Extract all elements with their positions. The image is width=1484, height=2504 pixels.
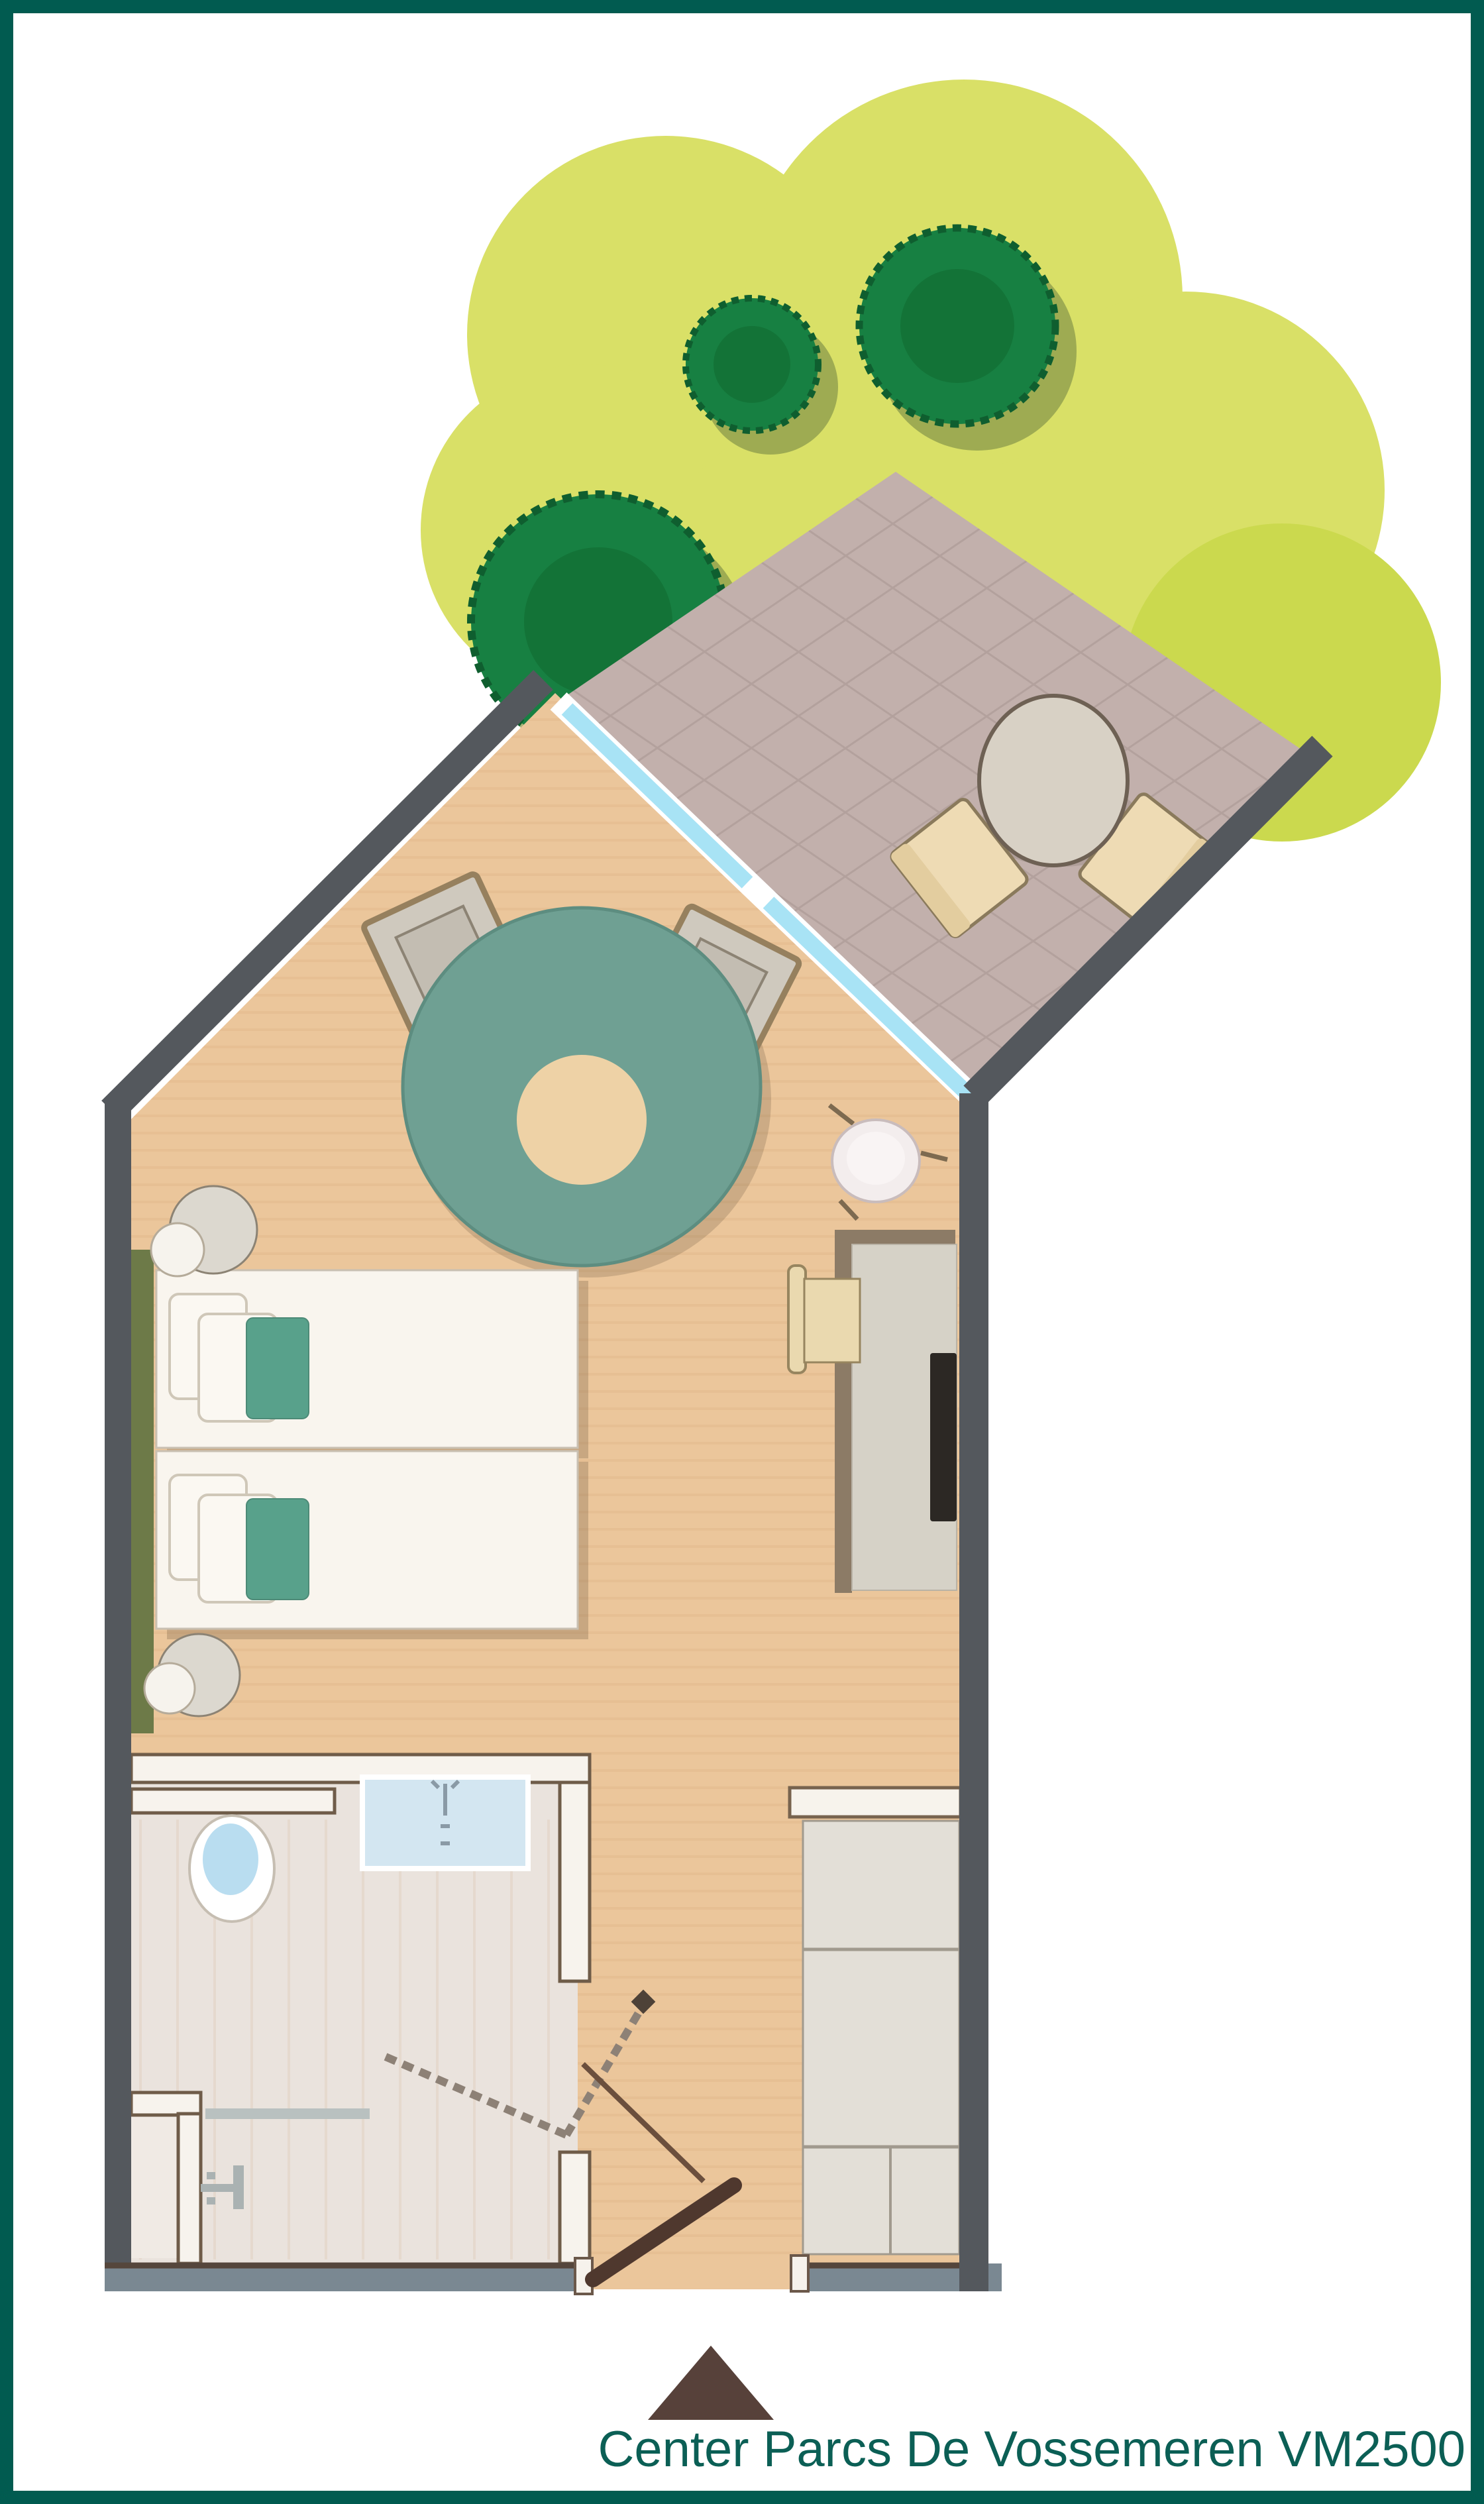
washbasin-inner (847, 1132, 905, 1185)
lamp-shade (144, 1663, 195, 1714)
toilet-bowl (203, 1824, 258, 1895)
wardrobe-body (803, 1821, 959, 2254)
tv-icon (930, 1353, 957, 1521)
headboard-panel (131, 1250, 154, 1733)
plan-title: Center Parcs De Vossemeren VM2500 (598, 2421, 1465, 2477)
shower-partition-side (178, 2114, 201, 2263)
wardrobe-shelf (790, 1788, 961, 1817)
tree-core (714, 326, 790, 403)
bathroom-wall-right-upper (560, 1782, 590, 1981)
twin-bed-2-icon (156, 1451, 588, 1639)
entrance-marker-triangle-icon (648, 2346, 774, 2420)
desk-shadow (835, 1230, 955, 1244)
shower-floor (131, 2115, 178, 2258)
wardrobe-icon (790, 1788, 961, 2254)
terrace-table-icon (979, 696, 1128, 865)
blanket-runner (246, 1318, 309, 1419)
rug-table (517, 1055, 647, 1185)
door-jamb-right (791, 2256, 808, 2291)
desk-chair-back (788, 1266, 806, 1373)
shower-partition-top (131, 2093, 201, 2115)
towel-bar-icon (205, 2108, 370, 2119)
lamp-shade (151, 1223, 204, 1276)
tree-core (900, 269, 1014, 383)
bathroom-wall-right-lower (560, 2152, 590, 2263)
bathroom-wall-stub (131, 1789, 335, 1813)
twin-bed-1-icon (156, 1270, 588, 1458)
blanket-runner (246, 1499, 309, 1600)
floorplan: Center Parcs De Vossemeren VM2500 (0, 0, 1484, 2504)
desk-chair-icon (804, 1279, 860, 1362)
